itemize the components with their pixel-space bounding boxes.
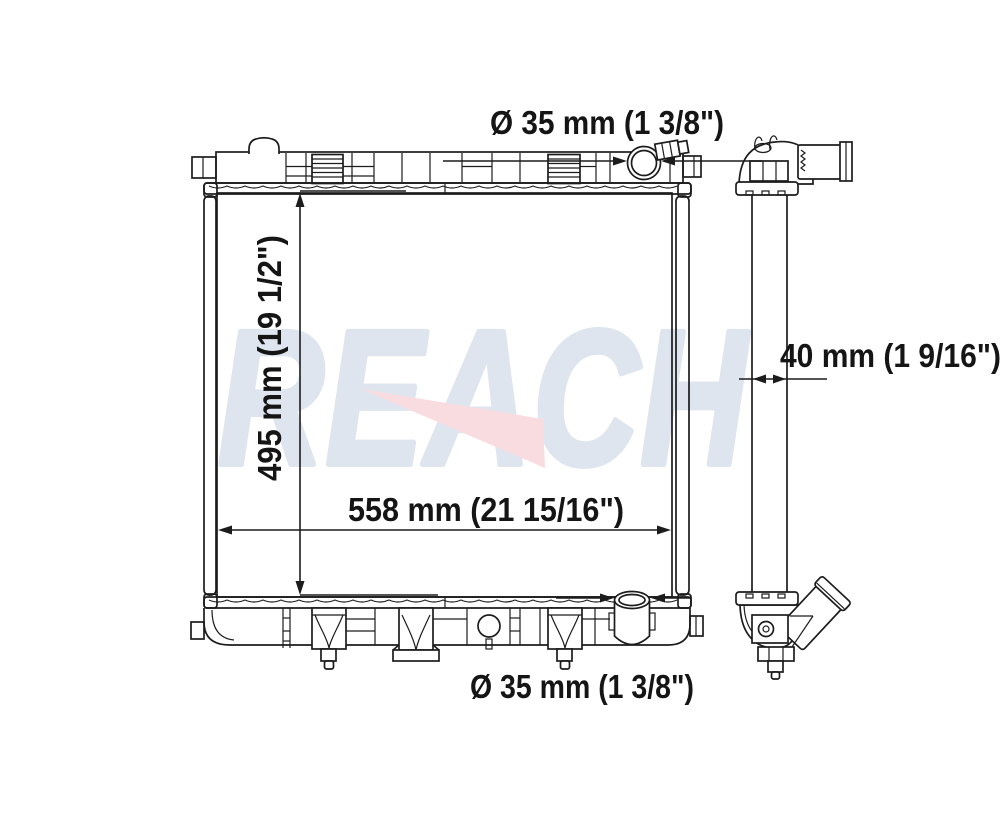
dim-core-width-label: 558 mm (21 15/16")	[348, 491, 624, 528]
watermark-logo: REACH	[218, 290, 749, 505]
watermark-brand-text: REACH	[218, 290, 749, 505]
filler-cap-dome	[249, 138, 279, 154]
outlet-port	[609, 592, 655, 645]
side-top-flange	[736, 182, 798, 195]
dim-core-depth-label: 40 mm (1 9/16")	[780, 337, 1001, 374]
dim-top-port-label: Ø 35 mm (1 3/8")	[490, 104, 724, 141]
side-inlet-pipe	[798, 145, 844, 179]
radiator-spec-diagram: REACH	[0, 0, 1002, 831]
center-foot-bracket	[393, 608, 439, 661]
dim-core-height-label: 495 mm (19 1/2")	[251, 235, 288, 481]
dim-bottom-port-label: Ø 35 mm (1 3/8")	[470, 668, 694, 705]
side-bottom-flange	[736, 592, 798, 605]
side-drain-plug	[752, 615, 788, 643]
